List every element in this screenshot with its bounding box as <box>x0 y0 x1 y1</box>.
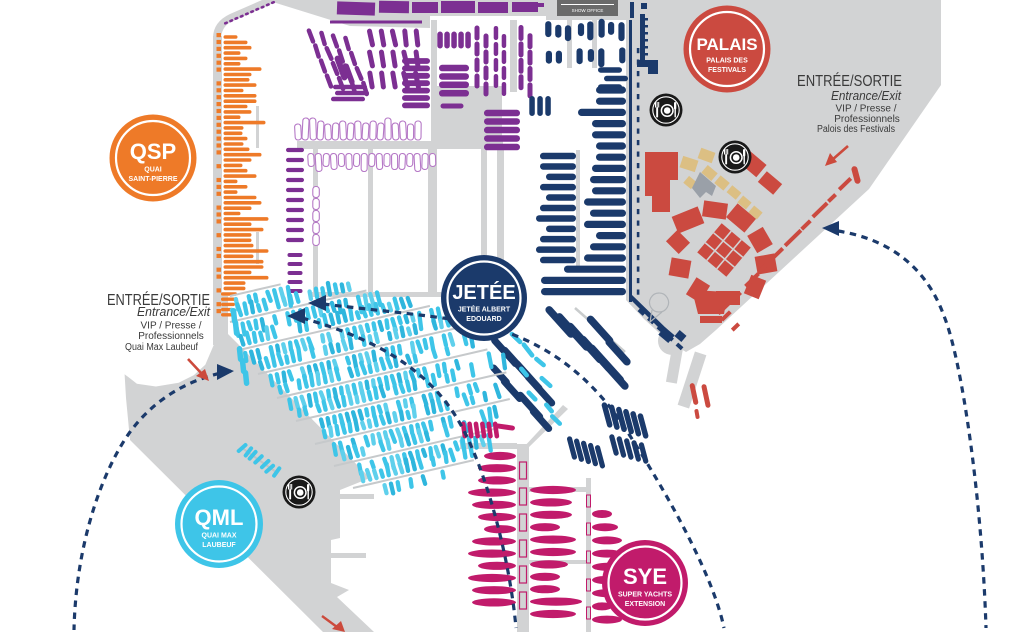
svg-text:QUAI: QUAI <box>144 167 162 174</box>
svg-text:Entrance/Exit: Entrance/Exit <box>137 304 211 319</box>
svg-text:Palois des Festivals: Palois des Festivals <box>817 124 895 135</box>
svg-text:SHOW OFFICE: SHOW OFFICE <box>572 8 604 13</box>
svg-text:JETÉE: JETÉE <box>452 281 515 304</box>
svg-text:QUAI MAX: QUAI MAX <box>202 533 237 540</box>
svg-text:FESTIVALS: FESTIVALS <box>708 67 746 74</box>
svg-text:EDOUARD: EDOUARD <box>466 316 501 323</box>
svg-text:SAINT-PIERRE: SAINT-PIERRE <box>128 176 177 183</box>
svg-text:SYE: SYE <box>623 564 667 589</box>
svg-text:SUPER YACHTS: SUPER YACHTS <box>618 592 672 599</box>
svg-text:EXTENSION: EXTENSION <box>625 601 665 608</box>
svg-text:Professionnels: Professionnels <box>138 331 204 342</box>
svg-text:QML: QML <box>195 505 244 530</box>
svg-text:LAUBEUF: LAUBEUF <box>202 542 236 549</box>
svg-text:JETÉE ALBERT: JETÉE ALBERT <box>458 305 511 314</box>
svg-text:VIP / Presse /: VIP / Presse / <box>141 321 202 332</box>
svg-text:Entrance/Exit: Entrance/Exit <box>831 88 902 103</box>
svg-text:PALAIS: PALAIS <box>696 35 757 54</box>
svg-text:QSP: QSP <box>130 139 176 164</box>
svg-text:PALAIS DES: PALAIS DES <box>706 58 748 65</box>
svg-text:VIP / Presse /: VIP / Presse / <box>836 104 897 115</box>
svg-text:Quai Max Laubeuf: Quai Max Laubeuf <box>125 342 198 353</box>
